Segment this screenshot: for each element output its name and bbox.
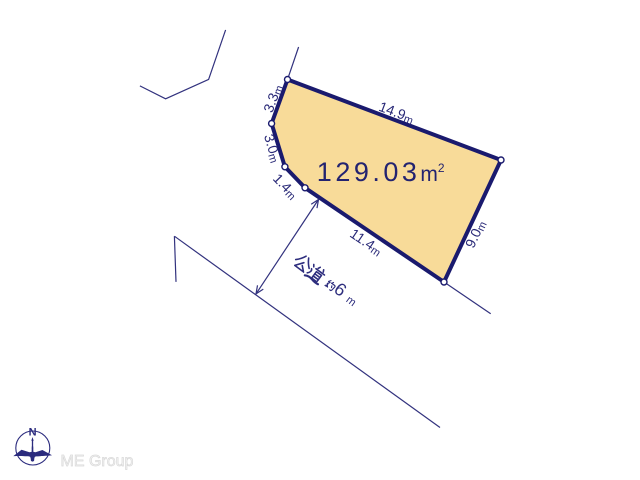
svg-text:N: N bbox=[29, 427, 37, 439]
svg-text:ME Group: ME Group bbox=[61, 453, 134, 470]
